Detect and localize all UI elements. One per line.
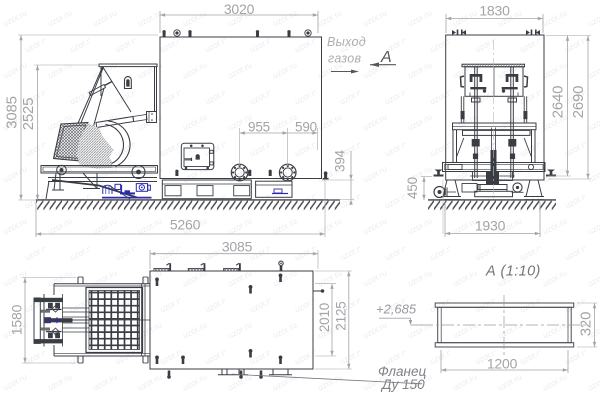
svg-text:5260: 5260 (170, 217, 201, 233)
svg-text:2010: 2010 (317, 303, 332, 332)
svg-text:2525: 2525 (20, 98, 37, 131)
svg-text:450: 450 (405, 177, 420, 199)
svg-text:3085: 3085 (4, 96, 21, 129)
svg-text:955: 955 (248, 120, 270, 135)
svg-text:1930: 1930 (475, 218, 506, 234)
svg-text:1580: 1580 (9, 304, 25, 335)
svg-text:+2,685: +2,685 (376, 302, 417, 317)
svg-text:1200: 1200 (487, 356, 518, 372)
svg-text:Выход: Выход (327, 35, 366, 49)
svg-text:А (1:10): А (1:10) (485, 264, 541, 280)
svg-text:Ду 150: Ду 150 (380, 377, 425, 392)
svg-text:320: 320 (578, 312, 595, 336)
svg-text:590: 590 (295, 120, 317, 135)
svg-text:3020: 3020 (224, 1, 255, 17)
svg-text:1830: 1830 (479, 3, 510, 19)
svg-text:2690: 2690 (570, 86, 587, 119)
svg-text:2640: 2640 (550, 86, 567, 119)
svg-text:газов: газов (328, 52, 362, 66)
svg-text:394: 394 (333, 149, 348, 172)
svg-text:3085: 3085 (222, 239, 253, 255)
svg-text:2125: 2125 (334, 301, 349, 330)
svg-text:А: А (380, 49, 392, 66)
